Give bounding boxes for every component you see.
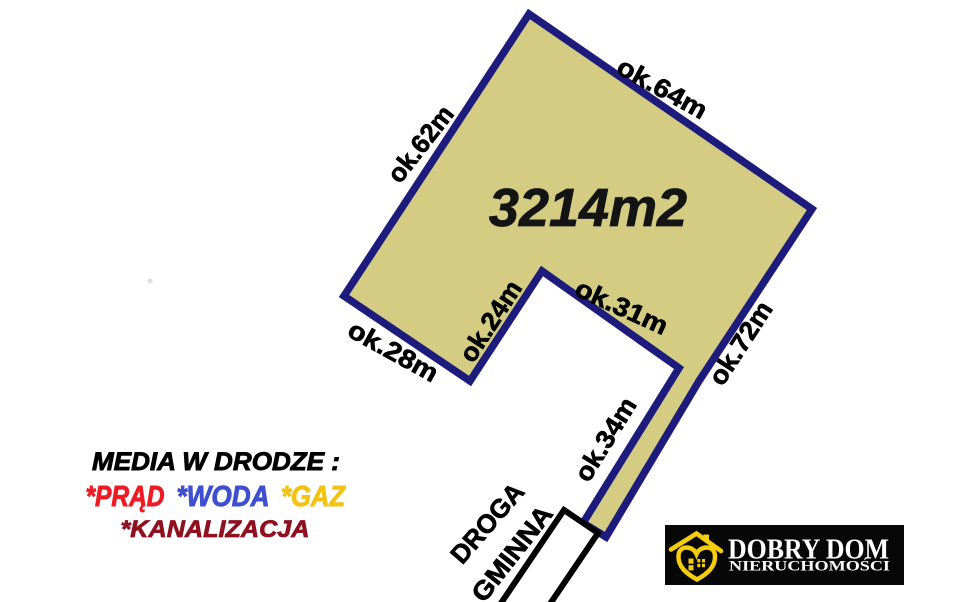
svg-text:*GAZ: *GAZ: [281, 481, 346, 513]
svg-text:MEDIA W DRODZE :: MEDIA W DRODZE :: [92, 448, 340, 476]
svg-text:NIERUCHOMOŚCI: NIERUCHOMOŚCI: [729, 558, 890, 575]
svg-text:*WODA: *WODA: [177, 481, 270, 513]
svg-text:3214m2: 3214m2: [489, 178, 687, 238]
svg-text:*KANALIZACJA: *KANALIZACJA: [121, 516, 310, 543]
svg-text:*PRĄD: *PRĄD: [86, 481, 165, 513]
